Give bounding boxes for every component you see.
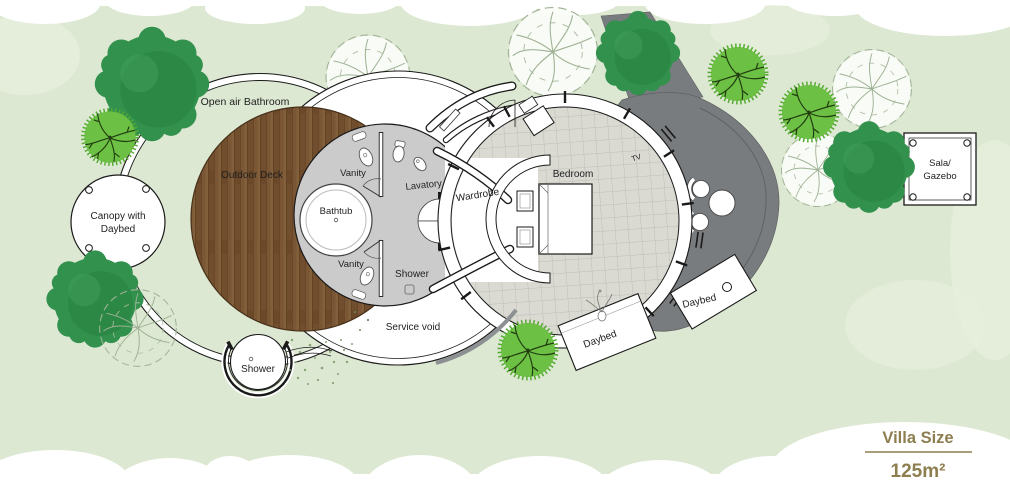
post [143, 245, 150, 252]
vanity-top-label: Vanity [340, 168, 366, 179]
canopy-pavilion [71, 175, 165, 269]
service-void-label: Service void [386, 322, 440, 333]
floor-plan-canvas: Open air Bathroom Outdoor Deck Canopy wi… [0, 0, 1010, 495]
shower-room-label: Shower [395, 269, 430, 280]
post [86, 245, 93, 252]
sala-gazebo [904, 133, 976, 205]
bed [539, 184, 592, 254]
villa-size-value: 125m² [891, 461, 946, 482]
dark-tree-icon [596, 11, 680, 95]
sala-label-line1: Sala/ [929, 158, 951, 169]
outdoor-deck-label: Outdoor Deck [221, 170, 284, 181]
open-air-bathroom-label: Open air Bathroom [201, 96, 290, 108]
post [86, 187, 93, 194]
shower-pod-label: Shower [241, 364, 276, 375]
bathtub-label: Bathtub [320, 206, 353, 217]
villa-size-heading: Villa Size [882, 429, 953, 447]
bedroom-label: Bedroom [553, 169, 594, 180]
floor-plan-page: Open air Bathroom Outdoor Deck Canopy wi… [0, 0, 1010, 495]
dark-tree-icon [46, 250, 143, 347]
sala-label-line2: Gazebo [923, 171, 956, 182]
daybed-pillow [723, 283, 732, 292]
deck-table [709, 190, 735, 216]
bathtub [300, 184, 372, 256]
deck-chair [689, 179, 709, 199]
post [143, 186, 150, 193]
post [910, 194, 916, 200]
vanity-bottom-label: Vanity [338, 259, 364, 270]
post [964, 194, 970, 200]
canopy-label-line1: Canopy with [90, 211, 145, 222]
canopy-label-line2: Daybed [101, 224, 135, 235]
post [910, 140, 916, 146]
post [964, 140, 970, 146]
dark-tree-icon [823, 121, 915, 213]
